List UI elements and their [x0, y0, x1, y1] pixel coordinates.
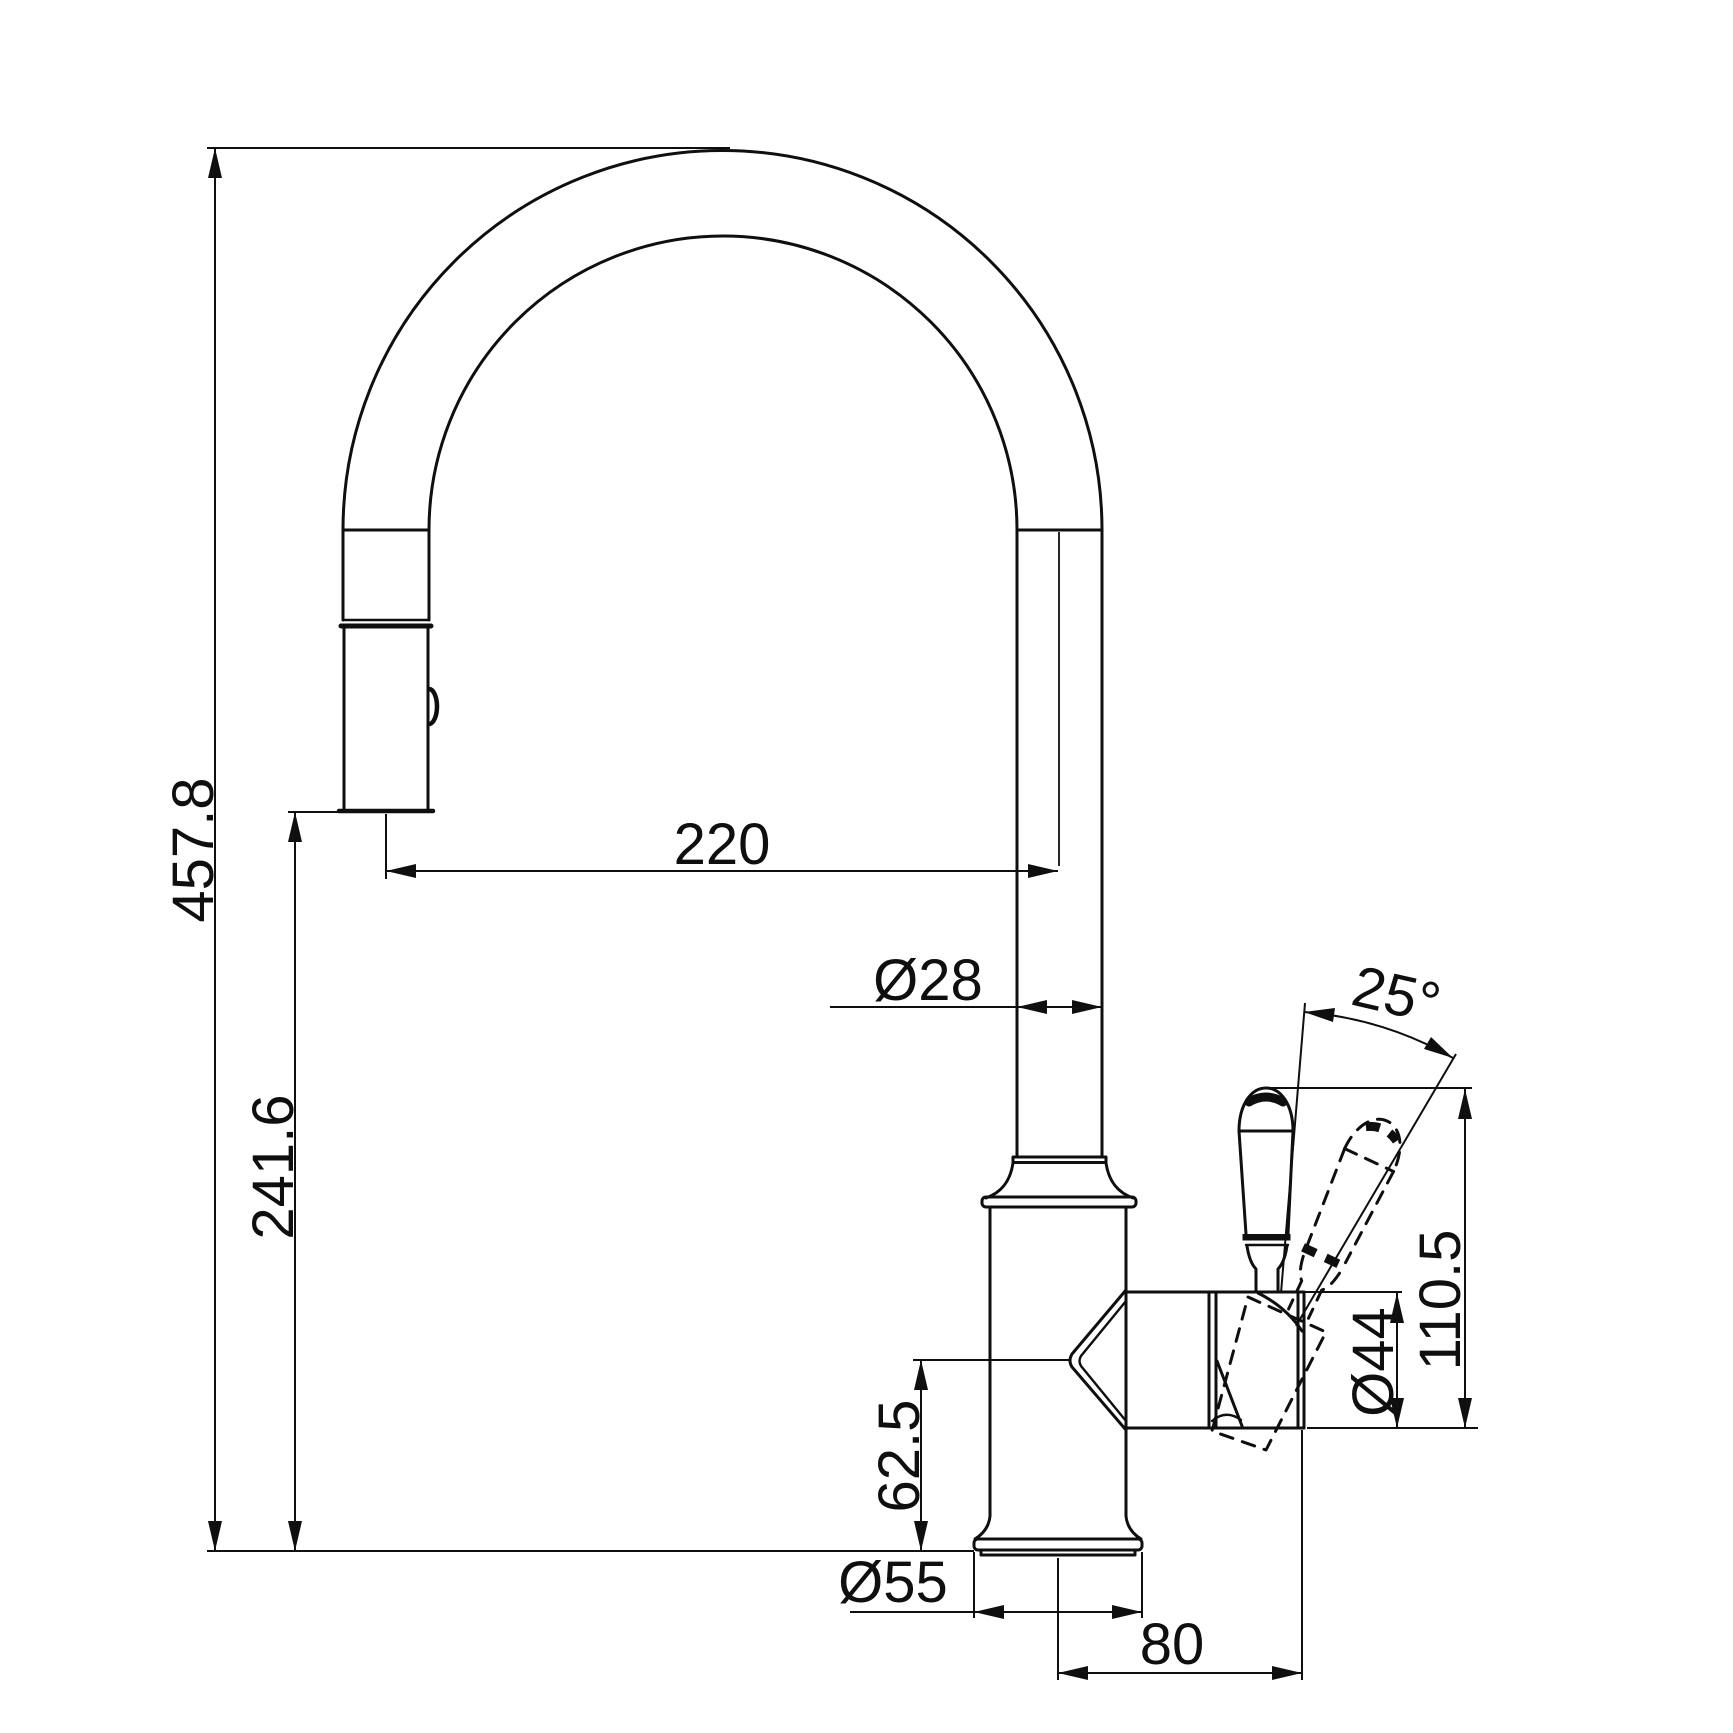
arrow-up-icon — [208, 148, 222, 178]
housing-left-cap — [1209, 1292, 1216, 1428]
dim-valve-diameter: Ø44 — [1305, 1292, 1406, 1428]
spout-arc — [343, 151, 1102, 531]
angle-ref-vertical — [1281, 1003, 1305, 1293]
arrow-right-icon — [1072, 1000, 1102, 1014]
arrow-up-icon — [288, 812, 302, 842]
dim-label-spout-reach: 220 — [674, 812, 771, 877]
dim-label-spout-diameter: Ø28 — [873, 948, 983, 1013]
faucet-technical-drawing: 457.8 241.6 220 Ø28 — [0, 0, 1733, 1733]
handle-neck-left — [1247, 1246, 1256, 1292]
handle-dashed-taper-left — [1301, 1149, 1351, 1245]
spout-arc-inner — [429, 236, 1017, 530]
faucet-body — [982, 1163, 1136, 1516]
spray-head — [339, 530, 437, 811]
handle-upright — [1239, 1088, 1293, 1292]
arrow-right-icon — [1112, 1605, 1142, 1619]
dim-body-section-height: 62.5 — [867, 1360, 1071, 1551]
arrow-up-icon — [1458, 1089, 1472, 1119]
handle-top-band — [1249, 1097, 1283, 1102]
arrow-right-icon — [1272, 1666, 1302, 1680]
dim-label-handle-top-height: 110.5 — [1408, 1230, 1473, 1371]
spout-arc-outer — [343, 151, 1102, 531]
handle-lower-band — [1243, 1234, 1291, 1241]
dim-label-base-diameter: Ø55 — [838, 1550, 948, 1615]
dim-label-handle-offset: 80 — [1140, 1612, 1205, 1677]
riser-collar — [1013, 1157, 1106, 1163]
dim-spout-reach: 220 — [386, 812, 1058, 879]
handle-dashed-taper-right — [1345, 1169, 1393, 1264]
dim-label-overall-height: 457.8 — [161, 777, 226, 922]
handle-dashed-neck-left — [1280, 1256, 1311, 1309]
arrow-left-icon — [1058, 1666, 1088, 1680]
dim-base-diameter: Ø55 — [838, 1550, 1142, 1619]
valve-housing — [1070, 1290, 1304, 1430]
faucet-outline — [339, 151, 1412, 1556]
arrow-arc-left-icon — [1304, 1008, 1335, 1022]
dimensions: 457.8 241.6 220 Ø28 — [161, 148, 1478, 1680]
dim-spout-diameter: Ø28 — [830, 948, 1102, 1014]
arrow-up-icon — [914, 1360, 928, 1390]
arrow-right-icon — [1028, 864, 1058, 878]
riser-pipe — [1013, 530, 1106, 1163]
dim-label-outlet-height: 241.6 — [241, 1094, 306, 1239]
drawing-canvas: 457.8 241.6 220 Ø28 — [0, 0, 1733, 1733]
arrow-left-icon — [974, 1605, 1004, 1619]
trumpet-flange — [982, 1197, 1136, 1207]
handle-dashed-dome — [1345, 1110, 1412, 1172]
arrow-left-icon — [1017, 1000, 1047, 1014]
handle-taper-left — [1239, 1131, 1246, 1234]
dim-overall-height: 457.8 — [161, 148, 974, 1551]
arrow-down-icon — [1458, 1398, 1472, 1428]
dim-label-handle-angle: 25° — [1346, 953, 1446, 1036]
handle-dashed-top-band — [1366, 1122, 1399, 1141]
dim-label-body-section-height: 62.5 — [867, 1400, 932, 1513]
arrow-down-icon — [914, 1521, 928, 1551]
arrow-left-icon — [386, 864, 416, 878]
dim-label-valve-diameter: Ø44 — [1341, 1307, 1406, 1417]
arrow-down-icon — [288, 1521, 302, 1551]
base-flange — [974, 1516, 1142, 1555]
base-plate — [974, 1539, 1142, 1550]
trumpet-right — [1106, 1163, 1133, 1198]
arrow-down-icon — [208, 1521, 222, 1551]
trumpet-left — [986, 1163, 1013, 1198]
base-flare-left — [975, 1516, 990, 1539]
spray-head-button — [429, 689, 437, 724]
dim-outlet-height: 241.6 — [241, 812, 347, 1551]
handle-dashed-dome-base — [1345, 1149, 1394, 1172]
base-flare-right — [1126, 1516, 1141, 1539]
arrow-arc-right-icon — [1424, 1037, 1453, 1058]
